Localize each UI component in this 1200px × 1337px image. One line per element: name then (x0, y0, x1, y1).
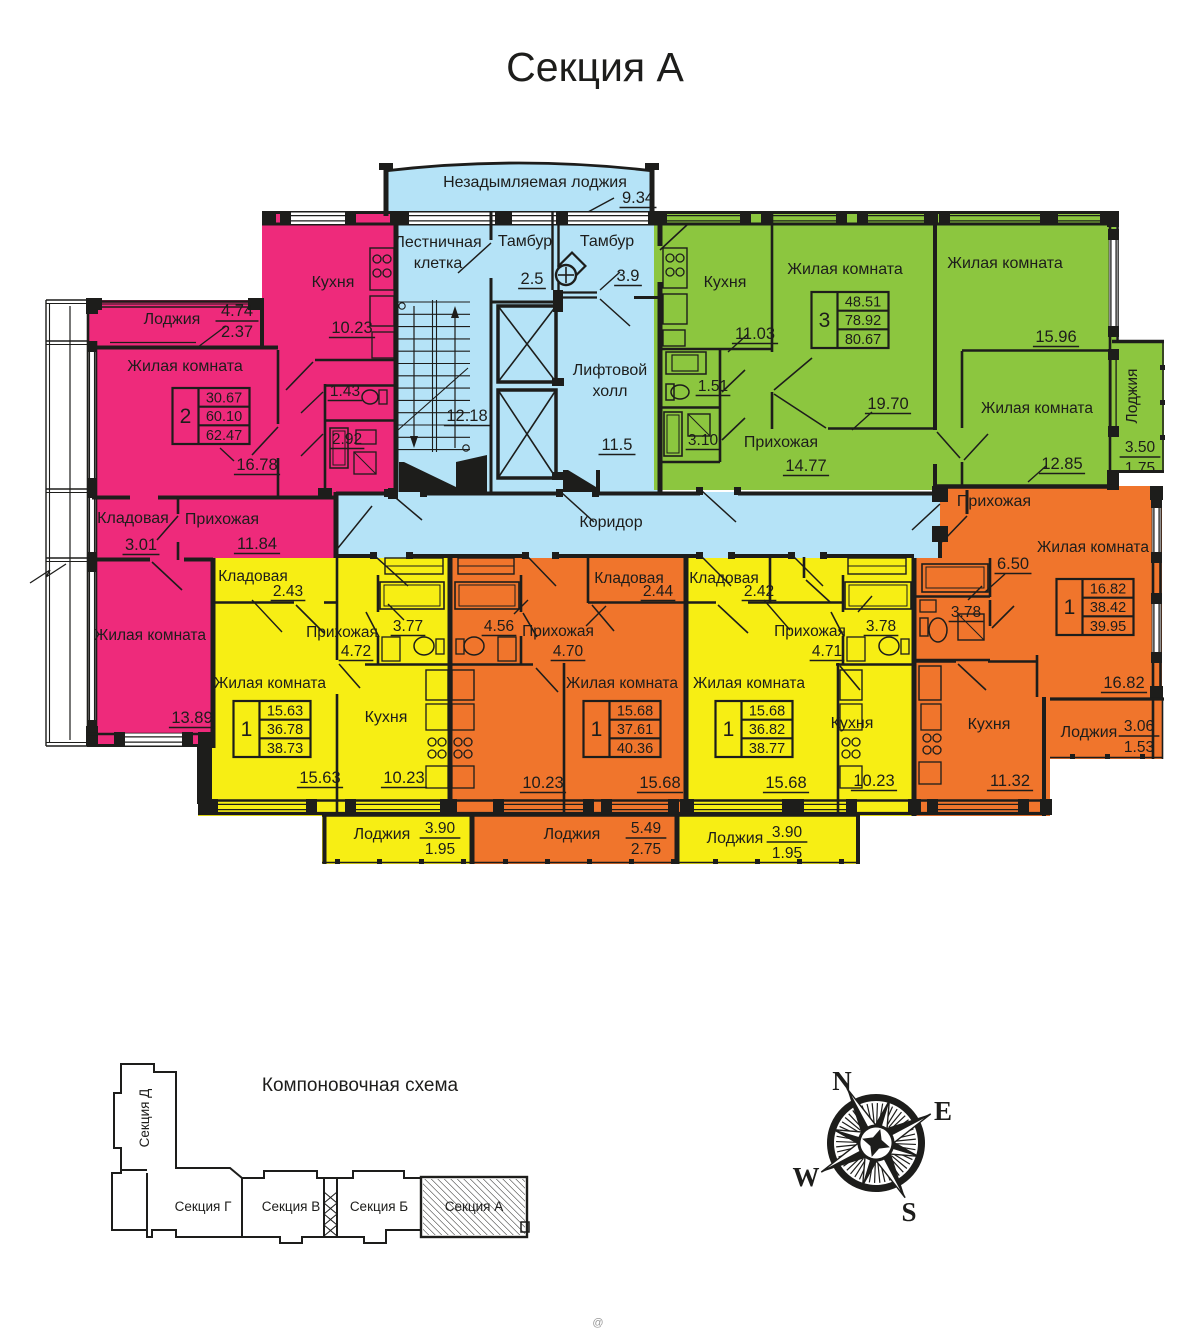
svg-text:2.75: 2.75 (631, 841, 661, 858)
svg-text:1: 1 (723, 718, 735, 741)
svg-text:Секция А: Секция А (445, 1199, 504, 1214)
svg-text:2.5: 2.5 (521, 270, 544, 288)
svg-text:1.95: 1.95 (772, 845, 802, 862)
svg-text:2.37: 2.37 (221, 323, 253, 341)
svg-text:9.34: 9.34 (622, 189, 654, 207)
svg-text:11.32: 11.32 (990, 772, 1030, 790)
svg-text:40.36: 40.36 (617, 741, 653, 757)
svg-text:10.23: 10.23 (383, 769, 424, 787)
svg-text:Секция Б: Секция Б (350, 1199, 408, 1214)
svg-text:Лоджия: Лоджия (544, 826, 601, 843)
svg-text:13.89: 13.89 (171, 709, 212, 727)
svg-text:Лестничная: Лестничная (394, 234, 481, 251)
svg-text:Жилая комната: Жилая комната (127, 358, 243, 375)
svg-text:Кухня: Кухня (831, 715, 874, 732)
svg-text:Секция Д: Секция Д (137, 1089, 152, 1148)
svg-text:Кладовая: Кладовая (97, 510, 169, 527)
svg-text:1.43: 1.43 (330, 383, 360, 400)
svg-text:2: 2 (180, 405, 192, 428)
svg-text:Прихожая: Прихожая (185, 511, 259, 528)
svg-text:Жилая комната: Жилая комната (214, 675, 326, 692)
svg-text:3: 3 (819, 309, 831, 332)
svg-text:3.01: 3.01 (125, 536, 157, 554)
svg-text:3.50: 3.50 (1125, 439, 1156, 456)
svg-text:Лоджия: Лоджия (707, 830, 764, 847)
svg-text:клетка: клетка (414, 255, 463, 272)
svg-text:36.82: 36.82 (749, 722, 785, 738)
svg-text:Незадымляемая лоджия: Незадымляемая лоджия (443, 174, 627, 191)
svg-text:15.63: 15.63 (299, 769, 340, 787)
svg-text:Жилая комната: Жилая комната (947, 255, 1063, 272)
svg-text:E: E (934, 1096, 952, 1126)
svg-text:3.78: 3.78 (866, 618, 896, 635)
svg-text:1.75: 1.75 (1125, 460, 1155, 477)
svg-text:Лоджия: Лоджия (1061, 724, 1118, 741)
svg-text:15.68: 15.68 (765, 774, 806, 792)
svg-text:Лоджия: Лоджия (354, 826, 411, 843)
svg-text:4.72: 4.72 (341, 643, 371, 660)
svg-text:Лифтовой: Лифтовой (573, 362, 647, 379)
svg-text:Жилая комната: Жилая комната (981, 400, 1093, 417)
svg-text:@: @ (592, 1317, 603, 1329)
svg-text:60.10: 60.10 (206, 409, 242, 425)
svg-text:80.67: 80.67 (845, 332, 881, 348)
svg-text:3.77: 3.77 (393, 618, 423, 635)
svg-text:1: 1 (241, 718, 253, 741)
svg-text:1: 1 (1064, 596, 1076, 619)
svg-text:37.61: 37.61 (617, 722, 653, 738)
svg-text:10.23: 10.23 (853, 772, 894, 790)
svg-text:62.47: 62.47 (206, 428, 242, 444)
svg-text:2.92: 2.92 (332, 431, 362, 448)
svg-text:Прихожая: Прихожая (744, 434, 818, 451)
svg-text:1.51: 1.51 (698, 378, 728, 395)
svg-text:Кухня: Кухня (365, 709, 408, 726)
svg-text:15.96: 15.96 (1035, 328, 1076, 346)
svg-text:Прихожая: Прихожая (957, 493, 1031, 510)
svg-text:Жилая комната: Жилая комната (94, 627, 206, 644)
svg-text:Жилая комната: Жилая комната (1037, 539, 1149, 556)
svg-text:Прихожая: Прихожая (306, 624, 378, 641)
svg-text:11.84: 11.84 (237, 535, 277, 553)
svg-text:Кухня: Кухня (312, 274, 355, 291)
svg-text:3.06: 3.06 (1124, 718, 1154, 735)
svg-text:10.23: 10.23 (522, 774, 563, 792)
svg-text:15.68: 15.68 (639, 774, 680, 792)
svg-text:W: W (793, 1162, 820, 1192)
svg-text:Тамбур: Тамбур (498, 233, 552, 250)
svg-text:3.9: 3.9 (617, 267, 640, 285)
svg-text:78.92: 78.92 (845, 313, 881, 329)
svg-text:38.42: 38.42 (1090, 600, 1126, 616)
svg-text:Тамбур: Тамбур (580, 233, 634, 250)
svg-text:38.73: 38.73 (267, 741, 303, 757)
svg-text:30.67: 30.67 (206, 391, 242, 407)
svg-text:5.49: 5.49 (631, 820, 661, 837)
svg-text:Секция В: Секция В (262, 1199, 321, 1214)
svg-text:4.71: 4.71 (812, 643, 842, 660)
svg-text:6.50: 6.50 (997, 555, 1029, 573)
svg-text:Коридор: Коридор (579, 514, 642, 531)
svg-text:Жилая комната: Жилая комната (787, 261, 903, 278)
svg-text:холл: холл (592, 383, 627, 400)
svg-text:3.10: 3.10 (688, 432, 719, 449)
svg-text:36.78: 36.78 (267, 722, 303, 738)
svg-text:1: 1 (591, 718, 603, 741)
svg-text:Кухня: Кухня (968, 716, 1011, 733)
svg-text:15.63: 15.63 (267, 704, 303, 720)
svg-text:15.68: 15.68 (749, 704, 785, 720)
svg-text:16.78: 16.78 (236, 456, 277, 474)
svg-text:Жилая комната: Жилая комната (693, 675, 805, 692)
svg-text:Жилая комната: Жилая комната (566, 675, 678, 692)
svg-text:S: S (901, 1197, 916, 1227)
svg-text:Компоновочная схема: Компоновочная схема (262, 1075, 459, 1096)
svg-text:14.77: 14.77 (785, 457, 826, 475)
svg-text:Лоджия: Лоджия (1124, 369, 1141, 424)
svg-text:3.78: 3.78 (951, 604, 981, 621)
svg-text:Секция Г: Секция Г (175, 1199, 232, 1214)
svg-text:3.90: 3.90 (772, 824, 803, 841)
svg-text:4.56: 4.56 (484, 618, 514, 635)
svg-text:1.53: 1.53 (1124, 739, 1154, 756)
svg-text:48.51: 48.51 (845, 295, 881, 311)
svg-text:15.68: 15.68 (617, 704, 653, 720)
svg-text:Секция А: Секция А (506, 44, 684, 90)
svg-text:12.85: 12.85 (1041, 455, 1082, 473)
svg-text:16.82: 16.82 (1103, 674, 1144, 692)
svg-text:19.70: 19.70 (867, 395, 908, 413)
svg-text:39.95: 39.95 (1090, 619, 1126, 635)
svg-text:38.77: 38.77 (749, 741, 785, 757)
svg-text:2.43: 2.43 (273, 583, 303, 600)
svg-text:10.23: 10.23 (331, 319, 372, 337)
svg-text:Лоджия: Лоджия (144, 311, 201, 328)
svg-text:4.70: 4.70 (553, 643, 584, 660)
svg-text:2.44: 2.44 (643, 583, 674, 600)
svg-text:Прихожая: Прихожая (522, 623, 594, 640)
svg-text:N: N (832, 1066, 852, 1096)
svg-text:Прихожая: Прихожая (774, 623, 846, 640)
svg-text:2.42: 2.42 (744, 583, 774, 600)
svg-text:12.18: 12.18 (446, 407, 487, 425)
svg-text:3.90: 3.90 (425, 820, 456, 837)
svg-text:1.95: 1.95 (425, 841, 455, 858)
svg-text:Кухня: Кухня (704, 274, 747, 291)
svg-text:16.82: 16.82 (1090, 582, 1126, 598)
svg-text:4.74: 4.74 (221, 302, 253, 320)
svg-text:11.5: 11.5 (602, 436, 633, 454)
